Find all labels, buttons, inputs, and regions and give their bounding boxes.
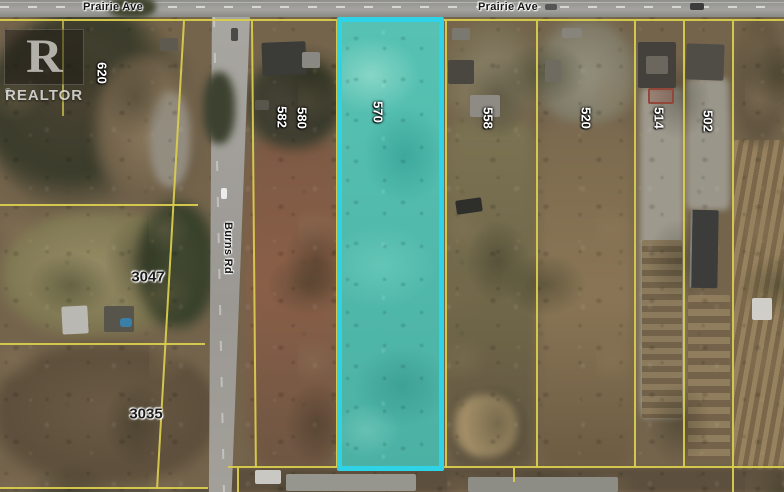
parcel-boundary-line (513, 468, 515, 482)
building-roof (286, 474, 416, 491)
realtor-brand-text: REALTOR® (5, 87, 12, 104)
swimming-pool (120, 318, 132, 327)
parcel-boundary-line (732, 21, 734, 492)
building-roof (646, 56, 668, 74)
realtor-logo-letter: R (26, 33, 62, 81)
parcel-boundary-line (0, 204, 198, 206)
road-label-prairie-ave-west: Prairie Ave (83, 1, 143, 13)
building-roof (689, 210, 718, 288)
parcel-label-580: 580 (295, 107, 310, 129)
building-roof (562, 28, 582, 38)
parcel-label-582: 582 (275, 106, 290, 128)
parcel-boundary-line (634, 21, 636, 467)
parcel-boundary-line (445, 21, 447, 467)
building-roof (452, 28, 470, 40)
realtor-logo: R (4, 29, 84, 85)
parcel-label-620: 620 (95, 62, 110, 84)
vehicle (690, 3, 704, 10)
building-roof (302, 52, 320, 68)
parcel-boundary-line (228, 466, 784, 468)
road-label-prairie-ave-east: Prairie Ave (478, 1, 538, 13)
building-roof (648, 88, 674, 104)
road-label-burns-rd: Burns Rd (222, 222, 234, 274)
vehicle (221, 188, 227, 199)
highlighted-parcel (337, 17, 444, 471)
building-roof (160, 38, 178, 51)
parcel-boundary-line (536, 21, 538, 467)
building-roof (545, 60, 561, 82)
building-roof (685, 43, 724, 80)
parcel-boundary-line (683, 21, 685, 467)
vehicle (545, 4, 557, 10)
parcel-boundary-line (0, 487, 208, 489)
building-roof (261, 41, 306, 76)
parcel-label-3035: 3035 (129, 406, 162, 423)
building-roof (255, 100, 269, 110)
parcel-label-520: 520 (579, 107, 594, 129)
building-roof (448, 60, 474, 84)
parcel-label-570: 570 (371, 101, 386, 123)
building-roof (468, 477, 618, 492)
parcel-label-502: 502 (701, 110, 716, 132)
vehicle (231, 28, 238, 41)
brand-word: REALTOR (5, 87, 83, 104)
parcel-label-558: 558 (481, 107, 496, 129)
aerial-parcel-map: Prairie Ave Prairie Ave Burns Rd 620 582… (0, 0, 784, 492)
parcel-boundary-line (237, 468, 239, 492)
parcel-label-514: 514 (652, 107, 667, 129)
building-roof (61, 305, 88, 334)
building-roof (255, 470, 281, 484)
parcel-boundary-line (0, 343, 205, 345)
parcel-label-3047: 3047 (131, 269, 164, 286)
tree-overhang (203, 72, 235, 144)
building-roof (752, 298, 772, 320)
